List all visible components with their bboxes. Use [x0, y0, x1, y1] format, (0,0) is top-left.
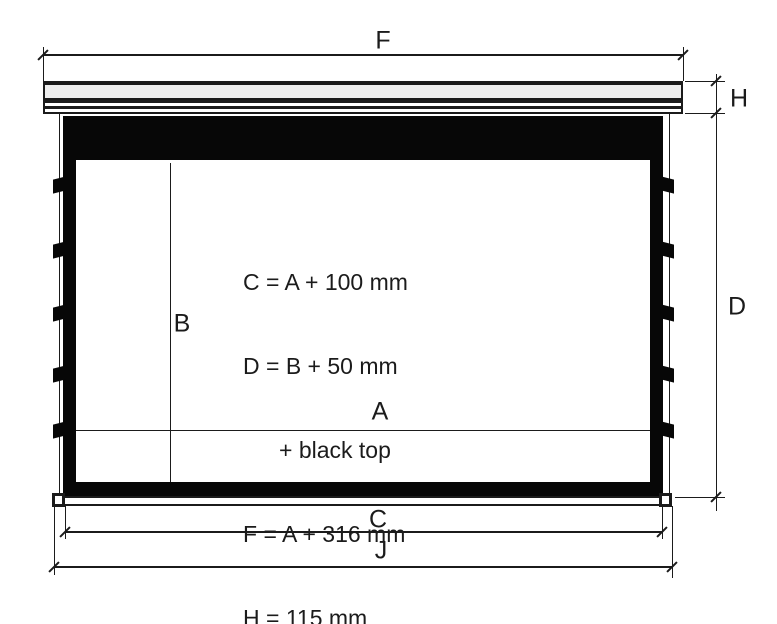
tension-tab — [661, 241, 674, 258]
c-extension-line-left — [65, 506, 67, 539]
c-extension-line-right — [662, 506, 664, 539]
slat-end-cap-right — [659, 493, 672, 507]
c-dimension-label: C — [369, 508, 387, 533]
tension-tab — [661, 304, 674, 321]
formula-line: D = B + 50 mm — [243, 352, 408, 380]
formula-line: C = A + 100 mm — [243, 268, 408, 296]
b-dimension-label: B — [174, 312, 191, 337]
bottom-slat — [52, 496, 672, 506]
slat-end-cap-left — [52, 493, 65, 507]
f-dimension-line — [43, 54, 683, 56]
formula-line: + black top — [243, 436, 408, 464]
casing-stripe — [45, 85, 681, 98]
j-dimension-label: J — [375, 539, 388, 564]
c-dimension-line — [65, 531, 662, 533]
h-extension-line-bottom — [685, 113, 725, 114]
diagram-canvas: F B A C = A + 100 mm D = B + 50 mm + bla… — [0, 0, 777, 624]
f-dimension-label: F — [375, 29, 390, 54]
hd-dimension-line — [716, 74, 718, 511]
tension-tab — [661, 365, 674, 382]
tension-tab — [661, 176, 674, 193]
j-dimension-line — [54, 566, 672, 568]
b-reference-line — [170, 163, 171, 482]
formula-line: H = 115 mm — [243, 604, 408, 624]
screen-casing — [43, 81, 683, 114]
right-tension-cord — [669, 114, 671, 496]
tension-tab — [661, 421, 674, 438]
d-dimension-label: D — [728, 295, 746, 320]
h-extension-line-top — [685, 81, 725, 82]
h-dimension-label: H — [730, 87, 748, 112]
casing-stripe — [45, 112, 681, 114]
